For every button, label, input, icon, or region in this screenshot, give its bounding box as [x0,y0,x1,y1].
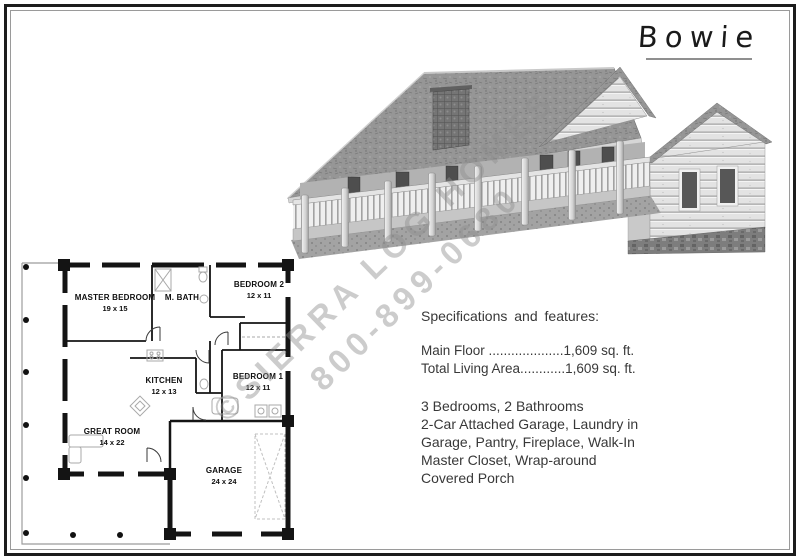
chimney [433,89,469,150]
fireplace [130,396,150,416]
room-label-kitchen: KITCHEN [146,376,183,385]
spec-area-line: Main Floor ....................1,609 sq.… [421,342,706,360]
room-size-kitchen: 12 x 13 [151,387,176,396]
specs-section: Specifications and features: Main Floor … [421,308,706,487]
house-rendering [283,45,773,260]
spec-feature-line: 3 Bedrooms, 2 Bathrooms [421,397,706,415]
floor-plan: MASTER BEDROOM 19 x 15 M. BATH BEDROOM 2… [12,253,312,551]
room-size-garage: 24 x 24 [211,477,237,486]
room-label-great-room: GREAT ROOM [84,427,141,436]
room-size-great-room: 14 x 22 [99,438,124,447]
specs-feature-lines: 3 Bedrooms, 2 Bathrooms 2-Car Attached G… [421,397,706,487]
spec-feature-line: Garage, Pantry, Fireplace, Walk-In [421,433,706,451]
specs-area-lines: Main Floor ....................1,609 sq.… [421,342,706,378]
room-size-master-bedroom: 19 x 15 [102,304,127,313]
garage-door-tracks [255,434,285,519]
room-label-bedroom-1: BEDROOM 1 [233,372,284,381]
spec-feature-line: Covered Porch [421,469,706,487]
spec-area-line: Total Living Area............1,609 sq. f… [421,360,706,378]
room-label-garage: GARAGE [206,466,243,475]
wing-window [720,169,735,203]
specs-heading: Specifications and features: [421,308,706,324]
room-size-bedroom-1: 12 x 11 [246,383,271,392]
room-label-bedroom-2: BEDROOM 2 [234,280,285,289]
exterior-walls [62,265,290,540]
spec-feature-line: 2-Car Attached Garage, Laundry in [421,415,706,433]
room-label-m-bath: M. BATH [165,293,199,302]
wing-window [682,172,697,208]
room-size-bedroom-2: 12 x 11 [247,291,272,300]
room-label-master-bedroom: MASTER BEDROOM [75,293,156,302]
spec-feature-line: Master Closet, Wrap-around [421,451,706,469]
